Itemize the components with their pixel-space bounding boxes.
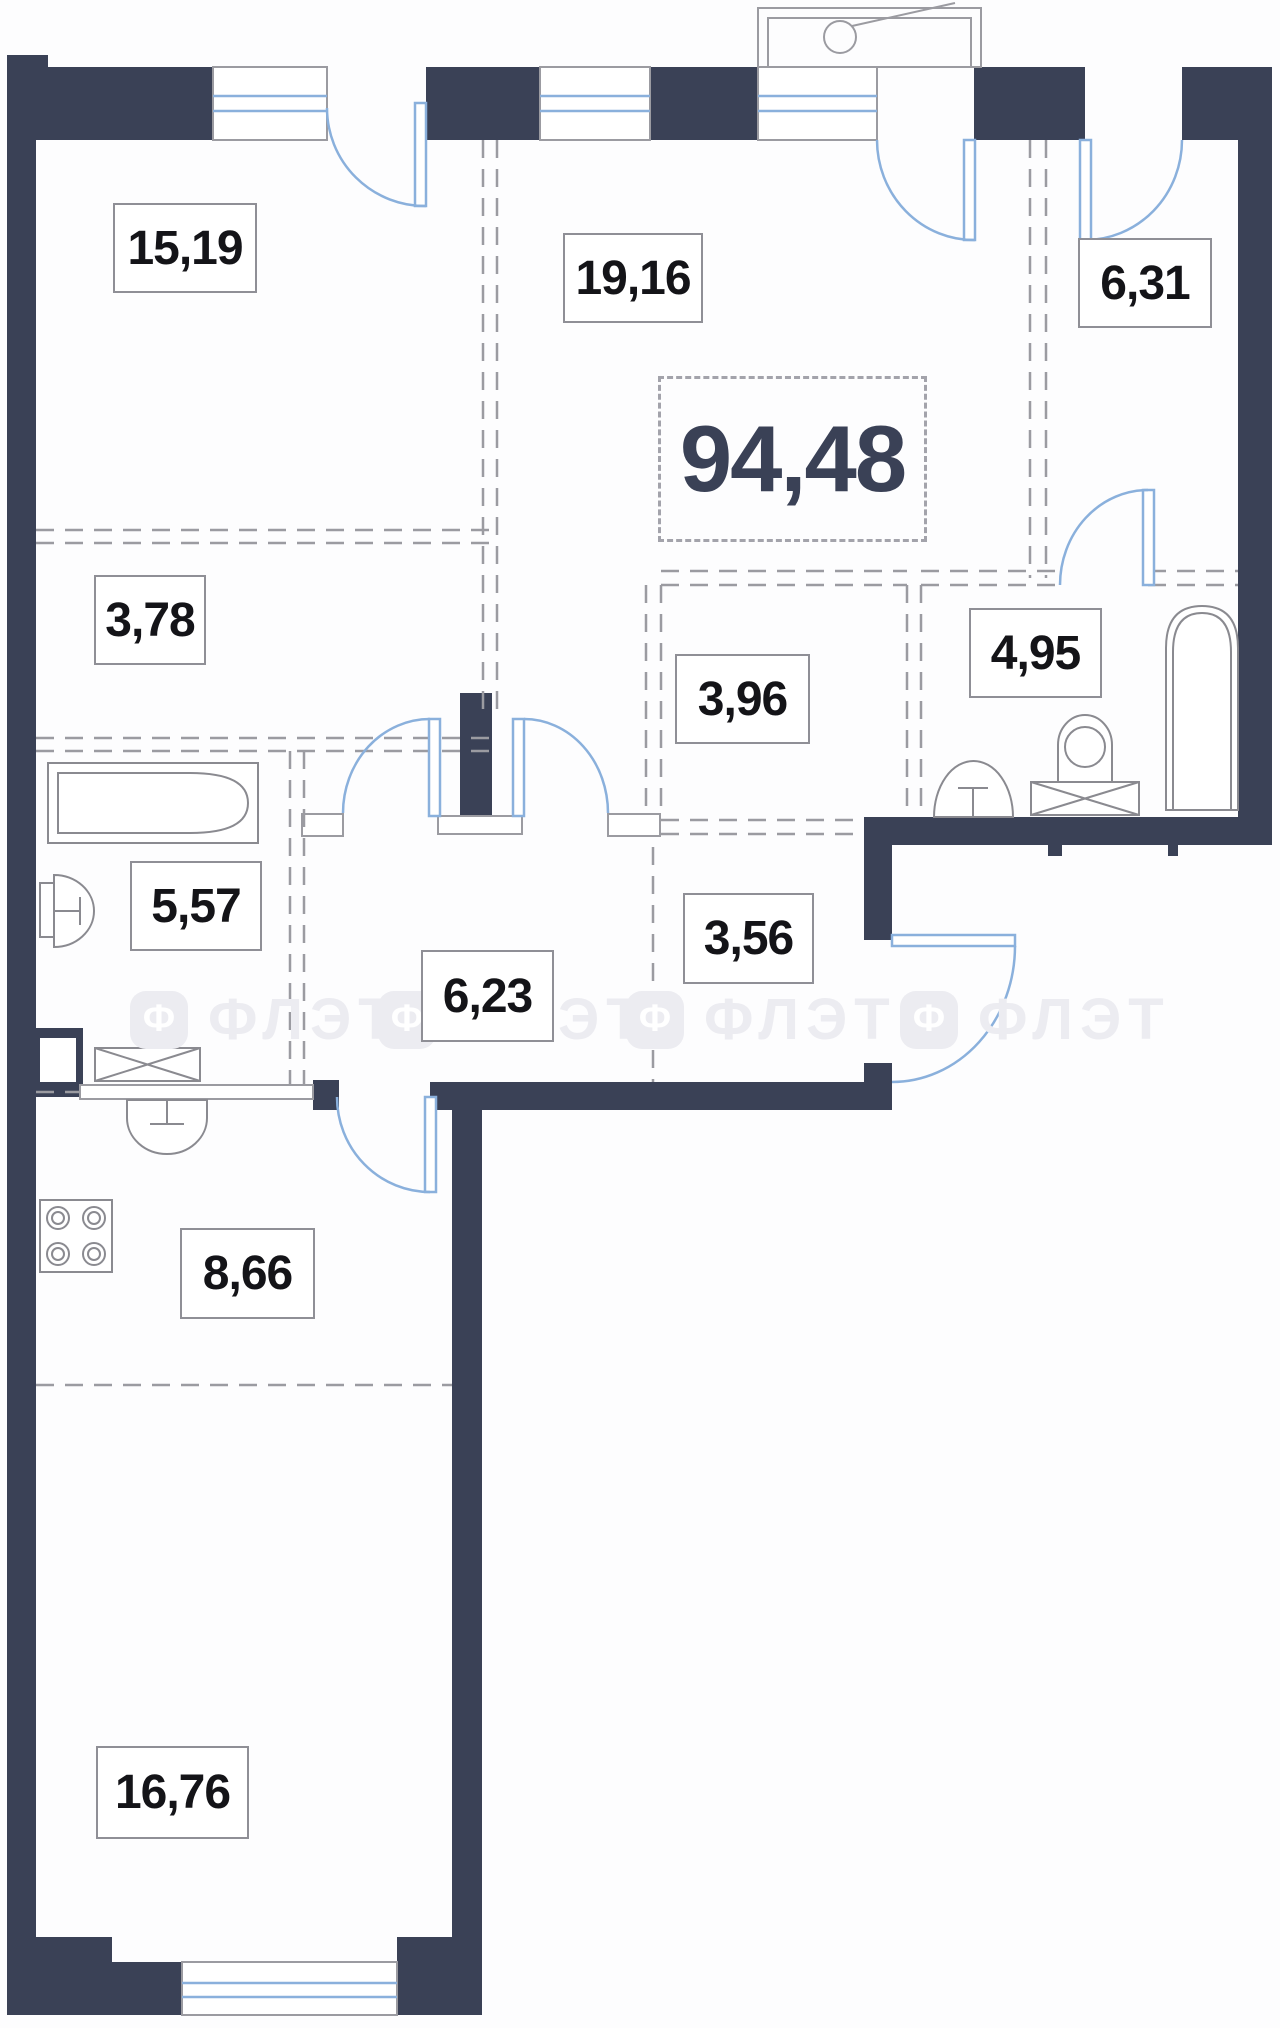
wall-tab-2 <box>1168 845 1178 856</box>
balcony-inner <box>768 18 971 67</box>
wall-bottom-segment <box>112 1962 186 2015</box>
wall-hall-bottom <box>430 1082 892 1110</box>
partition-bath557-bottom <box>80 1085 313 1099</box>
door-balcony <box>877 140 975 240</box>
wall-right <box>1238 67 1272 845</box>
floor-plan: Ф ФЛЭТ Ф ФЛЭТ Ф ФЛЭТ Ф ФЛЭТ 15,19 19,16 … <box>0 0 1280 2028</box>
watermark-text: ФЛЭТ <box>208 986 401 1053</box>
dashed-storage396-left <box>646 585 661 814</box>
door-bathroom-4-95 <box>1060 490 1154 585</box>
door-room-15-19 <box>327 103 426 206</box>
room-label-15-19: 15,19 <box>113 203 257 293</box>
watermark-logo-icon: Ф <box>626 991 684 1049</box>
watermark: Ф ФЛЭТ <box>626 986 897 1053</box>
room-label-19-16: 19,16 <box>563 233 703 323</box>
stove-icon <box>40 1200 112 1272</box>
wall-kitchen-door-jamb <box>313 1080 339 1110</box>
pedestal-sink-icon <box>1031 715 1139 815</box>
door-room-6-31 <box>1080 140 1182 240</box>
room-label-5-57: 5,57 <box>130 861 262 951</box>
watermark: Ф ФЛЭТ <box>900 986 1171 1053</box>
partition-hall-right <box>608 814 660 836</box>
kitchen-sink-icon <box>127 1100 207 1154</box>
room-label-4-95: 4,95 <box>969 608 1102 698</box>
wall-top-3 <box>650 67 758 140</box>
wall-tab-1 <box>1048 845 1062 856</box>
watermark-logo-icon: Ф <box>900 991 958 1049</box>
window-room-16-76 <box>182 1962 397 2015</box>
watermark-text: ФЛЭТ <box>704 986 897 1053</box>
room-label-6-31: 6,31 <box>1078 238 1212 328</box>
shower-icon <box>1166 606 1238 810</box>
room-label-8-66: 8,66 <box>180 1228 315 1319</box>
balcony-handle-line <box>852 3 955 26</box>
dashed-room1519-right <box>483 140 497 720</box>
dashed-wardrobe-top <box>36 530 497 543</box>
room-label-3-56: 3,56 <box>683 893 814 984</box>
shaft-opening <box>40 1038 76 1082</box>
dashed-hall-divider <box>661 820 864 834</box>
room-label-3-96: 3,96 <box>675 654 810 744</box>
watermark-text: ФЛЭТ <box>978 986 1171 1053</box>
window-room-15-19 <box>213 67 327 140</box>
wall-door-stub <box>460 693 492 816</box>
total-area-value: 94,48 <box>680 405 905 513</box>
total-area-box: 94,48 <box>658 376 927 542</box>
wall-top-1 <box>7 67 213 140</box>
wall-entrance-upper <box>864 845 892 940</box>
dashed-room631-left <box>1030 140 1046 578</box>
balcony-outer <box>758 8 981 67</box>
partition-doors-threshold <box>438 816 522 834</box>
door-kitchen <box>337 1097 436 1192</box>
partition-hall-left <box>302 814 343 836</box>
wall-bottom-right-block <box>397 1937 482 2015</box>
balcony-outline <box>758 3 981 67</box>
wall-bottom-left-block <box>7 1937 112 2015</box>
wall-top-corner-notch <box>7 55 48 69</box>
watermark: Ф ФЛЭТ <box>130 986 401 1053</box>
wall-bath-bottom <box>864 817 1272 845</box>
wall-top-4 <box>974 67 1085 140</box>
window-balcony <box>758 67 877 140</box>
dashed-bath495-left <box>907 585 921 817</box>
wall-top-2 <box>426 67 540 140</box>
toilet-icon-bath495 <box>934 761 1013 817</box>
wall-room-divider-vertical <box>452 1110 482 1962</box>
balcony-handle-icon <box>824 21 856 53</box>
room-label-3-78: 3,78 <box>94 575 206 665</box>
wall-left <box>7 67 36 2015</box>
bathtub-icon <box>48 763 258 843</box>
room-label-16-76: 16,76 <box>96 1746 249 1839</box>
door-double-left <box>343 719 440 816</box>
watermark-logo-icon: Ф <box>130 991 188 1049</box>
toilet-icon-bath557 <box>40 875 94 947</box>
window-room-19-16 <box>540 67 650 140</box>
door-double-right <box>513 719 608 816</box>
room-label-6-23: 6,23 <box>421 950 554 1042</box>
